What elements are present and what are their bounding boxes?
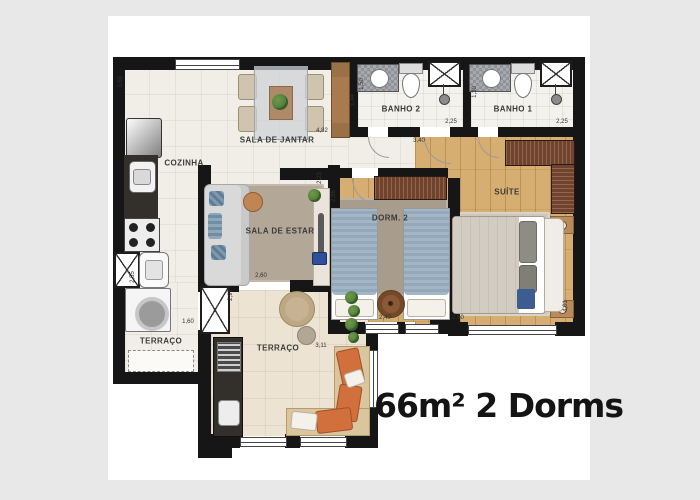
window <box>365 324 399 334</box>
room-label-banho-2: BANHO 2 <box>382 105 421 114</box>
wall <box>198 448 232 458</box>
tank-basin <box>145 260 163 280</box>
burner-icon <box>129 238 138 247</box>
room-label-suite: SUÍTE <box>494 188 520 197</box>
laundry-tank <box>139 252 169 288</box>
burner-icon <box>146 223 155 232</box>
terrace-pouf <box>279 291 315 327</box>
wall <box>280 168 338 180</box>
wall <box>338 168 352 178</box>
bed-pillow <box>519 221 537 263</box>
shower-head-icon <box>551 94 562 105</box>
burner-icon <box>146 238 155 247</box>
plant-centerpiece-icon <box>272 94 288 110</box>
hall-cabinet <box>331 62 350 138</box>
bed-cover <box>404 209 449 295</box>
sink-bowl-icon <box>482 69 501 88</box>
dimension-hall-width: 3,40 <box>413 138 425 144</box>
rug-center-icon <box>388 301 393 306</box>
dimension-service-width: 1,60 <box>182 319 194 325</box>
window <box>405 324 439 334</box>
side-table <box>243 192 263 212</box>
dimension-left-wall: 3,60 <box>118 76 124 88</box>
room-label-terraco: TERRAÇO <box>257 344 299 353</box>
stove <box>124 218 160 252</box>
plant-icon <box>348 305 360 317</box>
wall <box>285 434 300 448</box>
dimension-dorm2-width: 2,40 <box>379 315 391 321</box>
plant-icon <box>345 291 358 304</box>
window <box>175 59 240 70</box>
bed-throw-blue <box>517 289 535 309</box>
sofa-pillow <box>211 245 226 260</box>
window <box>300 437 347 447</box>
dimension-service-depth: 2,55 <box>130 271 136 283</box>
shaft-icon <box>540 61 572 87</box>
dorm2-wardrobe <box>374 176 447 200</box>
washer-drum-icon <box>135 297 169 331</box>
plant-icon <box>308 189 321 202</box>
bench-pillow-white <box>290 411 318 432</box>
plant-icon <box>348 332 359 343</box>
suite-bed <box>452 216 546 314</box>
terrace-stool <box>297 326 316 345</box>
media-console <box>312 252 327 265</box>
room-label-terraco-servico: TERRAÇO <box>140 337 182 346</box>
bed-blanket <box>453 217 519 313</box>
wall <box>388 127 420 137</box>
dimension-dining-width: 4,82 <box>316 128 328 134</box>
dimension-living-depth: 2,96 <box>331 190 337 202</box>
sink-bowl-icon <box>370 69 389 88</box>
fridge <box>126 118 162 158</box>
suite-wardrobe-top <box>505 140 575 166</box>
wall <box>345 434 378 448</box>
grill-icon <box>217 342 241 372</box>
dimension-banho2-depth: 1,50 <box>359 78 365 90</box>
dimension-banho2-width: 2,25 <box>445 119 457 125</box>
wall <box>450 127 478 137</box>
gourmet-counter <box>213 337 243 437</box>
suite-wardrobe-side <box>551 164 575 214</box>
shower-head-icon <box>439 94 450 105</box>
burner-icon <box>129 223 138 232</box>
shaft-icon <box>114 252 140 288</box>
wall <box>348 127 368 137</box>
plan-caption: 66m² 2 Dorms <box>374 386 623 425</box>
bed-pillow <box>407 299 446 317</box>
kitchen-sink-basin <box>133 169 151 185</box>
room-label-sala-de-estar: SALA DE ESTAR <box>246 227 315 236</box>
shaft-icon <box>428 61 461 87</box>
wall <box>498 127 585 137</box>
room-label-banho-1: BANHO 1 <box>494 105 533 114</box>
wall <box>448 322 468 336</box>
room-label-sala-de-jantar: SALA DE JANTAR <box>240 136 315 145</box>
dimension-banho1-width: 2,25 <box>556 119 568 125</box>
service-bench-outline <box>128 350 194 372</box>
dimension-suite-depth: 4,01 <box>563 300 569 312</box>
dimension-terrace-depth: 2,97 <box>228 289 234 301</box>
tv-panel <box>313 188 330 286</box>
dimension-suite-width: 2,60 <box>452 315 464 321</box>
dimension-banho1-depth: 1,30 <box>472 86 478 98</box>
sofa-pillow <box>209 191 224 206</box>
dimension-living-corner: 2,25 <box>317 172 323 184</box>
dimension-terrace-width: 3,11 <box>315 343 326 349</box>
sofa-throw <box>208 213 222 239</box>
window <box>240 437 287 447</box>
bed-cover <box>332 209 377 295</box>
room-label-dorm-2: DORM. 2 <box>372 214 408 223</box>
plant-icon <box>345 318 358 331</box>
suite-headboard <box>544 218 564 312</box>
bench-cushion-orange <box>315 407 354 434</box>
dimension-hall-cabinet: 1,44 <box>350 94 356 106</box>
dorm2-round-rug <box>377 290 405 318</box>
dorm2-bed-right <box>403 208 450 320</box>
dimension-living-opening: 2,60 <box>255 273 267 279</box>
washing-machine <box>125 288 171 332</box>
room-label-cozinha: COZINHA <box>164 159 203 168</box>
shaft-icon <box>200 286 230 334</box>
gourmet-sink <box>218 400 240 426</box>
window <box>468 325 557 335</box>
wall <box>113 372 205 384</box>
floor-plan-canvas: SALA DE JANTAR COZINHA BANHO 2 BANHO 1 S… <box>0 0 700 500</box>
